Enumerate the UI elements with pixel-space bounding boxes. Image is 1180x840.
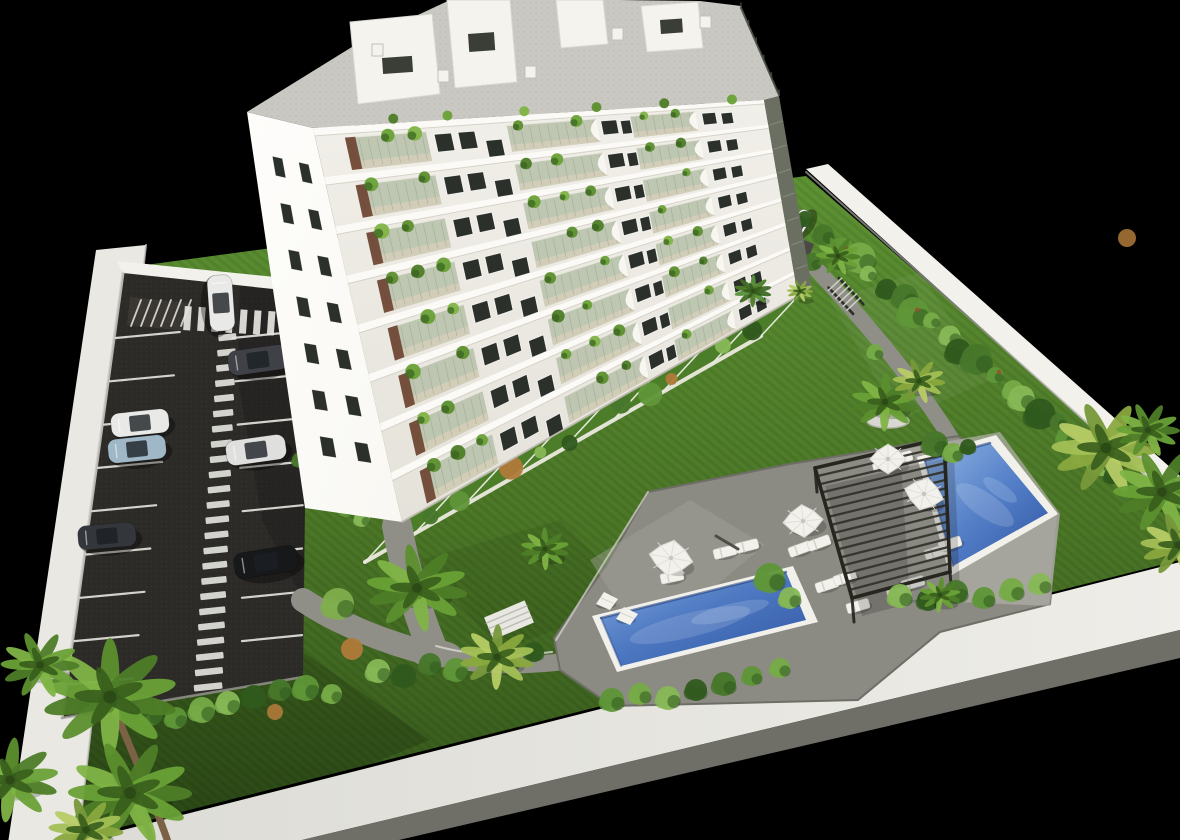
roof-chimney — [700, 16, 711, 28]
penthouse-volume — [556, 0, 608, 48]
front-window — [434, 133, 455, 152]
roof-chimney — [525, 66, 536, 78]
front-window — [726, 139, 739, 152]
front-window — [614, 185, 632, 202]
front-window — [721, 112, 734, 124]
front-window — [453, 217, 473, 238]
front-window — [702, 112, 718, 125]
front-window — [712, 167, 727, 181]
penthouse-window — [382, 56, 413, 74]
front-window — [462, 259, 482, 281]
roof-chimney — [612, 28, 623, 40]
front-window — [620, 120, 633, 134]
penthouse-window — [468, 32, 495, 52]
front-window — [707, 140, 722, 154]
aerial-rendering — [0, 0, 1180, 840]
front-window — [476, 212, 496, 232]
front-window — [503, 217, 522, 237]
front-window — [731, 165, 744, 178]
front-window — [458, 131, 478, 150]
front-window — [601, 120, 619, 135]
front-window — [486, 139, 506, 157]
front-window — [607, 153, 625, 169]
front-window — [494, 178, 513, 197]
roof-chimney — [438, 70, 449, 82]
front-window — [444, 175, 465, 195]
penthouse-window — [660, 18, 683, 34]
rendering-stage — [0, 0, 1180, 840]
front-window — [736, 191, 749, 205]
roof-chimney — [372, 44, 383, 56]
front-window — [467, 172, 487, 191]
